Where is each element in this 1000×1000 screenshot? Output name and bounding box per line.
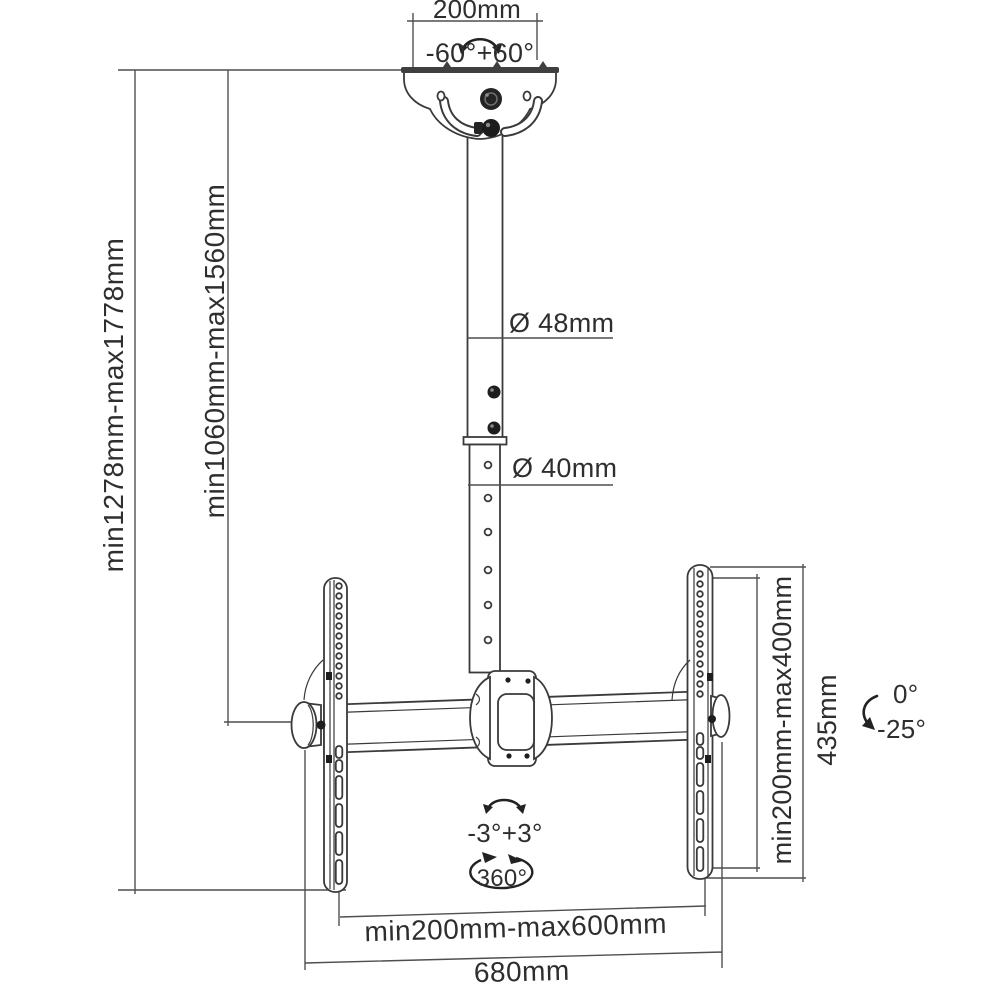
label-tilt-max: 0° — [893, 679, 918, 709]
labels: 200mm -60°+60° Ø 48mm Ø 40mm min1278mm-m… — [98, 0, 926, 988]
label-level-adjust-range: -3°+3° — [467, 818, 542, 848]
left-vesa-arm — [292, 578, 348, 892]
bolt-glint — [486, 123, 490, 127]
hub-clamp-plate — [498, 694, 534, 750]
label-crossbar-width: 680mm — [473, 955, 570, 988]
left-knob-bolt — [317, 721, 326, 730]
bolt-glint — [485, 93, 489, 97]
left-safety-clip-wire — [304, 660, 323, 700]
center-pivot-bolt — [480, 88, 502, 110]
telescopic-pole — [464, 130, 614, 673]
label-tilt-min: -25° — [877, 714, 926, 744]
label-vesa-height-range: min200mm-max400mm — [767, 576, 797, 865]
hub-right-lobe — [534, 677, 552, 759]
plate-hole-left — [438, 92, 445, 101]
label-pole-height: min1060mm-max1560mm — [199, 184, 230, 519]
bolt-glint — [490, 388, 494, 392]
center-hub — [470, 671, 552, 766]
ceiling-mount — [401, 61, 559, 139]
label-vesa-width-range: min200mm-max600mm — [364, 908, 667, 947]
label-bracket-height: 435mm — [812, 674, 842, 766]
diagram-page: 200mm -60°+60° Ø 48mm Ø 40mm min1278mm-m… — [0, 0, 1000, 1000]
pole-collar — [464, 437, 507, 445]
bolt-glint — [490, 424, 494, 428]
right-knob-bolt — [708, 715, 716, 723]
label-lower-pole-diameter: Ø 40mm — [512, 453, 617, 483]
pole-lock-bolt-1 — [488, 386, 501, 399]
lower-bolt-washer — [474, 122, 483, 134]
pole-lock-bolt-2 — [488, 422, 501, 435]
level-arc-icon — [488, 800, 521, 809]
plate-hole-right — [524, 92, 531, 101]
rotation-arrowhead-left — [482, 852, 497, 863]
label-overall-height: min1278mm-max1778mm — [98, 238, 129, 573]
right-arm-screw-bottom — [705, 755, 711, 763]
label-rotation-full: 360° — [477, 865, 528, 892]
label-ceiling-plate-width: 200mm — [433, 0, 521, 24]
left-arm-screw-top — [326, 672, 332, 680]
right-knob-face — [713, 695, 730, 737]
right-arm-screw-top — [707, 673, 713, 681]
label-swivel-range: -60°+60° — [426, 38, 535, 68]
lower-pivot-bolt — [482, 119, 500, 137]
left-arm-screw-bottom — [326, 755, 332, 763]
diagram-canvas: 200mm -60°+60° Ø 48mm Ø 40mm min1278mm-m… — [0, 0, 1000, 1000]
label-upper-pole-diameter: Ø 48mm — [509, 308, 614, 338]
